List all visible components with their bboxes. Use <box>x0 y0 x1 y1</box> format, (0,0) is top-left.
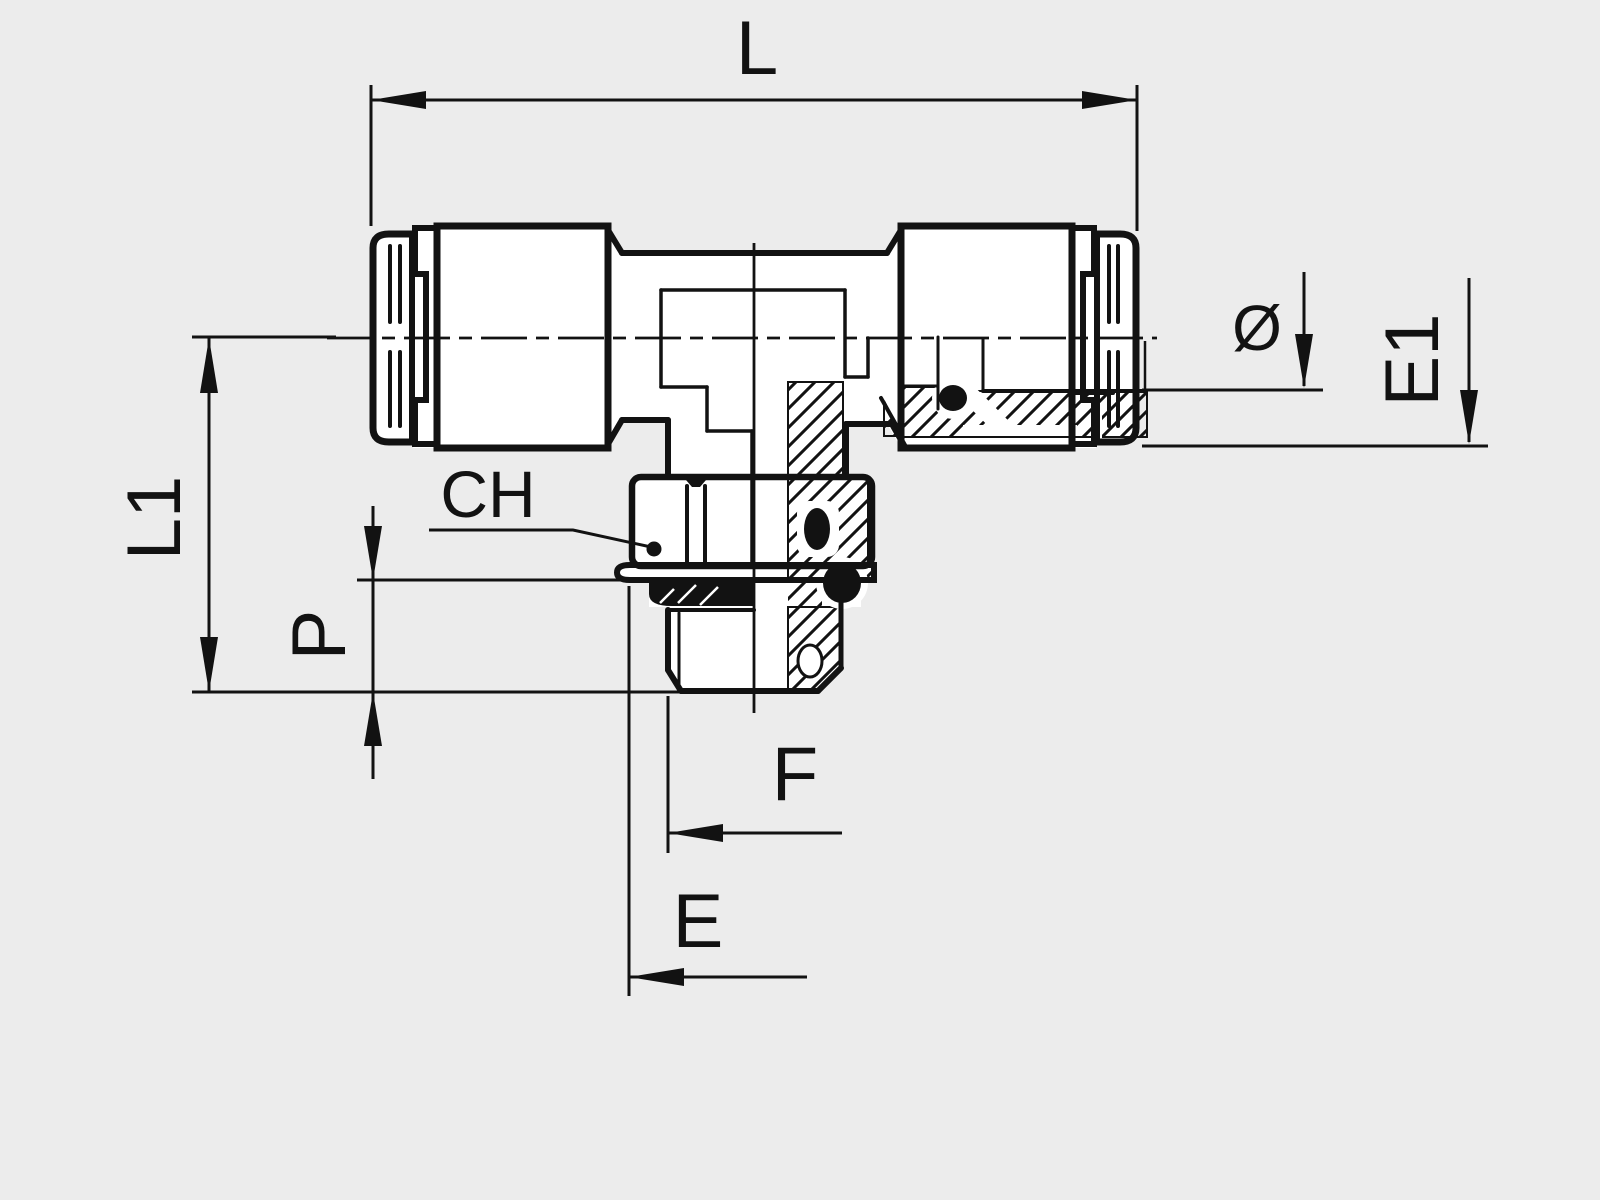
technical-drawing-canvas: L L1 P CH F E E1 Ø <box>0 0 1600 1200</box>
fitting-dimension-diagram: L L1 P CH F E E1 Ø <box>0 0 1600 1200</box>
dim-label-E1: E1 <box>1370 314 1455 407</box>
dim-label-diameter: Ø <box>1232 292 1282 364</box>
dim-label-L: L <box>736 6 778 91</box>
dim-label-E: E <box>673 879 724 964</box>
dim-label-L1: L1 <box>112 476 197 561</box>
dim-label-CH: CH <box>440 457 535 531</box>
leader-dot-icon <box>647 542 662 557</box>
o-ring-tube-seal-section <box>939 385 967 411</box>
dim-label-P: P <box>277 610 362 661</box>
o-ring-upper-section <box>804 508 830 550</box>
dim-label-F: F <box>772 732 818 817</box>
hatch-branch-wall <box>788 382 843 477</box>
